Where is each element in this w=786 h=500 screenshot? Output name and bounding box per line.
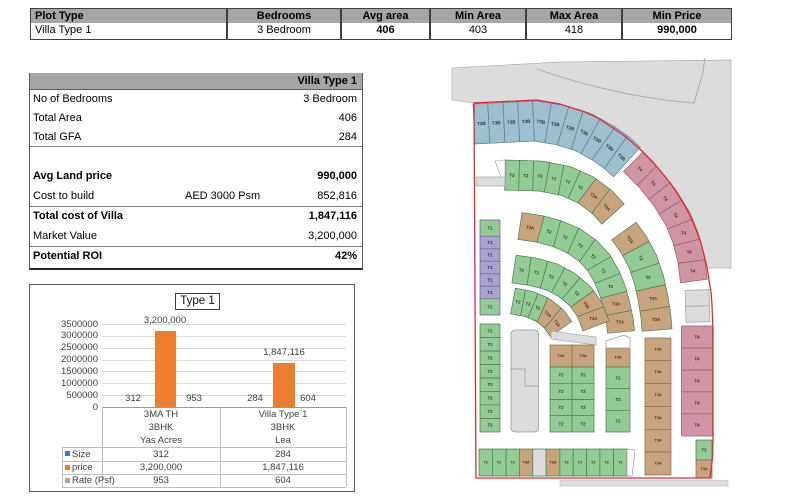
svg-text:T2: T2 — [564, 461, 568, 465]
svg-text:T2: T2 — [646, 275, 652, 280]
svg-text:T3A: T3A — [616, 320, 624, 325]
svg-text:T2: T2 — [580, 389, 586, 394]
svg-text:T2: T2 — [608, 284, 614, 289]
svg-text:T2: T2 — [487, 423, 493, 428]
svg-text:T4: T4 — [694, 335, 700, 340]
svg-text:T1: T1 — [487, 253, 493, 258]
svg-text:T3A: T3A — [654, 347, 661, 351]
svg-text:T4: T4 — [690, 269, 696, 274]
svg-text:T3A: T3A — [523, 461, 530, 465]
svg-text:T2: T2 — [618, 461, 622, 465]
svg-text:T2: T2 — [578, 461, 582, 465]
svg-text:T2: T2 — [580, 421, 586, 426]
svg-text:T2: T2 — [615, 397, 621, 402]
svg-text:T3B: T3B — [477, 121, 487, 126]
svg-text:T3A: T3A — [654, 416, 661, 420]
svg-text:T3A: T3A — [654, 439, 661, 443]
svg-text:T2: T2 — [487, 304, 493, 309]
svg-text:T3A: T3A — [654, 461, 661, 465]
svg-text:T2: T2 — [509, 173, 515, 178]
svg-text:T2: T2 — [487, 396, 493, 401]
svg-text:T2: T2 — [558, 405, 564, 410]
svg-text:T2: T2 — [511, 461, 515, 465]
svg-text:T3B: T3B — [507, 119, 517, 124]
svg-text:T2: T2 — [487, 355, 493, 360]
svg-text:T2: T2 — [615, 419, 621, 424]
svg-text:T2: T2 — [487, 369, 493, 374]
svg-text:T3A: T3A — [612, 301, 620, 306]
svg-text:T2: T2 — [558, 373, 564, 378]
svg-text:T2: T2 — [558, 421, 564, 426]
svg-text:T2: T2 — [487, 328, 493, 333]
svg-text:T4: T4 — [694, 378, 700, 383]
svg-text:T2: T2 — [497, 461, 501, 465]
svg-text:T3A: T3A — [579, 354, 586, 358]
svg-text:T3B: T3B — [522, 119, 532, 124]
svg-text:T2: T2 — [591, 461, 595, 465]
svg-text:T1: T1 — [487, 278, 493, 283]
svg-text:T2: T2 — [483, 461, 487, 465]
svg-text:T3A: T3A — [700, 467, 707, 471]
svg-text:T3A: T3A — [589, 316, 597, 321]
svg-text:T2: T2 — [558, 389, 564, 394]
svg-text:T4: T4 — [681, 231, 687, 236]
svg-text:T2: T2 — [487, 382, 493, 387]
svg-text:T2: T2 — [487, 342, 493, 347]
svg-text:T3A: T3A — [614, 356, 621, 360]
svg-text:T2: T2 — [580, 405, 586, 410]
svg-text:T2: T2 — [487, 409, 493, 414]
svg-text:T3A: T3A — [557, 354, 564, 358]
svg-text:T2: T2 — [701, 448, 707, 453]
svg-text:T2: T2 — [615, 375, 621, 380]
svg-text:T4: T4 — [687, 249, 693, 254]
svg-text:T3A: T3A — [652, 317, 660, 322]
svg-text:T1: T1 — [487, 240, 493, 245]
svg-text:T2: T2 — [487, 226, 493, 231]
svg-text:T1: T1 — [487, 265, 493, 270]
svg-text:T1: T1 — [487, 290, 493, 295]
svg-text:T3A: T3A — [654, 393, 661, 397]
svg-text:T4: T4 — [694, 423, 700, 428]
svg-text:T4: T4 — [694, 400, 700, 405]
svg-text:T2: T2 — [604, 461, 608, 465]
svg-text:T4: T4 — [694, 357, 700, 362]
svg-text:T3A: T3A — [549, 461, 556, 465]
svg-text:T3B: T3B — [492, 120, 502, 125]
svg-text:T2: T2 — [580, 373, 586, 378]
svg-text:T2: T2 — [523, 173, 529, 178]
svg-text:T3A: T3A — [654, 370, 661, 374]
svg-text:T3A: T3A — [649, 296, 657, 301]
